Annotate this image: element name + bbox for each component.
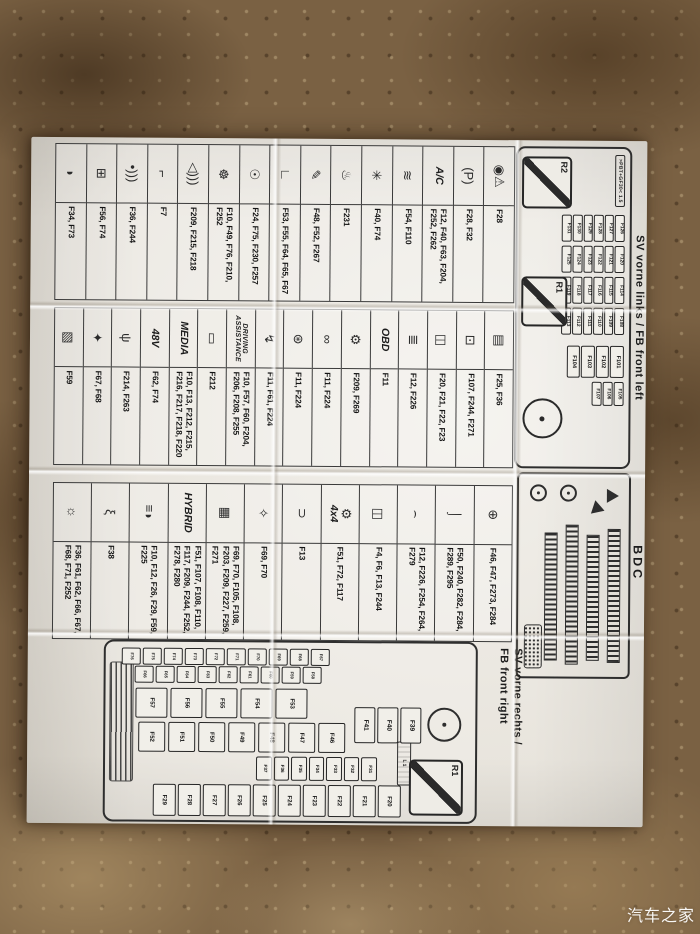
fuse-list: F69, F70, F105, F108, F203, F209, F227, … (206, 543, 244, 640)
fuse-slot: F34 (309, 757, 325, 781)
interior-light-icon-row: ☼F36, F61, F62, F66, F67, F68, F71, F252 (53, 483, 92, 639)
window-lift-icon: ◫ (435, 334, 448, 346)
heated-window-icon: ◫ (360, 485, 398, 544)
fuse-list: F11, F224 (284, 369, 312, 466)
mirror-icon: ▤ (485, 311, 513, 370)
fuse-slot: F41 (354, 707, 375, 743)
fuse-list: F10, F12, F26, F29, F59, F225 (129, 542, 167, 639)
fuse-slot: F61 (240, 666, 259, 683)
parking-brake-icon: (P) (454, 147, 484, 206)
media-label-row: MEDIAF10, F13, F212, F215, F216, F217, F… (169, 309, 199, 465)
fuse-slot: F109 (604, 308, 614, 335)
legend-group-2: ▤F25, F36⊡F107, F244, F271◫F20, F21, F22… (53, 307, 514, 468)
fuse-slot: F65 (156, 666, 175, 683)
fuse-slot: F35 (291, 757, 307, 781)
ac-label: A/C (423, 147, 453, 206)
fuse-slot: F47 (288, 723, 315, 753)
fuse-slot: F36 (274, 757, 290, 781)
fuse-list: F107, F244, F271 (456, 370, 484, 467)
fuse-slot: F21 (353, 785, 376, 817)
ac-label-row: A/CF12, F40, F63, F204, F252, F262 (422, 147, 454, 303)
fuse-slot: F33 (326, 757, 342, 781)
heated-seat-icon-row: ♨F231 (331, 146, 363, 302)
connector-pin-row (565, 525, 579, 665)
fuse-slot: F26 (228, 784, 251, 816)
label-text: MEDIA (178, 321, 189, 355)
front-left-relays: R2R1 (628, 149, 630, 467)
fuse-slot: F105 (614, 382, 624, 406)
engine-pump-icon: ⊛ (292, 334, 305, 345)
fuse-list: F51, F72, F117 (321, 544, 359, 641)
fuse-list: F20, F21, F22, F23 (427, 370, 455, 467)
headlight-icon: ◗ (56, 144, 86, 203)
fuse-legend-table: ◉⚠F28(P)F28, F32A/CF12, F40, F63, F204, … (52, 143, 515, 642)
48v-label: 48V (141, 309, 169, 368)
fan-icon-row: ✳F40, F74 (361, 146, 393, 302)
connector-module-icon-row: ≣F12, F226 (398, 311, 428, 467)
fuse-list: F212 (198, 368, 226, 465)
headlight-beam-icon-row: ≡◗F10, F12, F26, F29, F59, F225 (129, 483, 168, 639)
rear-defrost-icon: ≋ (401, 170, 414, 181)
fuse-slot: F73 (185, 648, 204, 665)
fuse-slot: F48 (258, 722, 285, 752)
fuse-list: F7 (147, 204, 177, 301)
diff-lock-icon-row: ⊕F46, F47, F273, F284 (474, 486, 512, 642)
fuse-slot: F70 (248, 648, 267, 665)
front-right-heading: SV vorne rechts / FB front right (496, 648, 525, 745)
battery-clamp-icon: ⊃ (283, 484, 321, 543)
parking-brake-icon: (P) (462, 167, 475, 184)
fuse-slot: F101 (610, 346, 624, 378)
glow-plug-icon-row: ξF38 (91, 483, 130, 639)
headlight-beam-icon: ≡◗ (142, 505, 155, 521)
steering-wheel-icon: ☸ (217, 168, 230, 180)
fuse-slot: F25 (253, 784, 276, 816)
fuse-column: F20F21F22F23F24F25F26F27F28F29 (153, 784, 401, 818)
screw-point-icon (530, 484, 547, 501)
fuse-list: F28 (484, 206, 514, 303)
key-icon-row: ✦F67, F68 (83, 309, 113, 465)
fuse-list: F34, F73 (55, 203, 85, 300)
fuse-diagram-document: SV vorne links / FB front left BDC >PBT+… (27, 137, 648, 827)
seatbelt-icon: ☉ (248, 169, 261, 181)
fuse-list: F51, F107, F108, F110, F117, F209, F244,… (168, 542, 206, 639)
display-icon-row: ⊡F107, F244, F271 (456, 311, 486, 467)
fuse-column: F46F47F48F49F50F51F52 (138, 722, 345, 753)
relay-r1: R1 (409, 760, 463, 816)
antenna-icon-row: •)))F36, F244 (117, 144, 149, 300)
pillar-icon-row: ⌐F7 (147, 145, 179, 301)
fuse-slot: F111 (583, 308, 593, 335)
convertible-top-icon: ⌢ (398, 485, 436, 544)
fuse-slot: F117 (583, 277, 593, 304)
chain-icon-row: ∞F11, F224 (312, 310, 342, 466)
fuse-list: F12, F226 (398, 370, 426, 467)
fuse-slot: F60 (261, 666, 280, 683)
chain-icon: ∞ (313, 310, 341, 369)
heated-window-icon-row: ◫F4, F6, F13, F244 (359, 485, 398, 641)
interior-light-icon: ☼ (66, 506, 79, 518)
hybrid-label-row: HYBRIDF51, F107, F108, F110, F117, F209,… (168, 483, 207, 639)
fuse-slot: F27 (203, 784, 226, 816)
fuse-slot: F40 (377, 707, 398, 743)
fuse-list: F231 (331, 205, 361, 302)
label-text: OBD (379, 328, 390, 351)
control-module-icon-row: ⊞F56, F74 (86, 144, 118, 300)
fuse-list: F46, F47, F273, F284 (474, 545, 512, 642)
horn-icon: ◁))) (178, 145, 208, 204)
fuse-column: F105F106F107 (592, 382, 624, 406)
steering-wheel-icon-row: ☸F10, F49, F76, F210, F252 (208, 145, 240, 301)
fuse-column: F39F40F41 (354, 707, 421, 743)
usb-icon: ψ (120, 333, 133, 342)
fuse-list: F24, F75, F230, F257 (239, 204, 269, 301)
window-lift-icon-row: ◫F20, F21, F22, F23 (427, 311, 457, 467)
trailer-hitch-icon: ⌡ (448, 510, 461, 518)
mirror-icon: ▤ (493, 334, 506, 346)
fuse-slot: F56 (170, 688, 202, 718)
camera-display-icon: ▭ (198, 309, 226, 368)
horn-icon-row: ◁)))F209, F215, F218 (178, 145, 210, 301)
fuse-list: F40, F74 (361, 205, 391, 302)
connector-pin-row (607, 529, 621, 663)
speaker-grid-drawing (524, 624, 542, 668)
fuse-list: F69, F70 (244, 543, 282, 640)
warning-triangle-icon (607, 489, 619, 503)
key-icon: ✦ (91, 332, 104, 343)
convertible-top-icon-row: ⌢F12, F226, F254, F264, F279 (397, 485, 436, 641)
buzzer-circle-drawing (427, 708, 461, 742)
connector-hatch-area (109, 661, 134, 781)
fuse-column: F114F115F116F117F118F119 (562, 277, 625, 304)
headlight-icon-row: ◗F34, F73 (55, 144, 87, 300)
fan-icon: ✳ (362, 146, 392, 205)
usb-icon-row: ψF214, F263 (111, 309, 141, 465)
fuse-column: F31F32F33F34F35F36F37 (256, 756, 377, 781)
fan-icon: ✳ (370, 170, 383, 181)
rear-defrost-icon-row: ≋F54, F110 (392, 146, 424, 302)
fuse-list: F54, F110 (392, 205, 422, 302)
steering-wheel-icon: ☸ (209, 145, 239, 204)
fuse-slot: F114 (615, 277, 625, 304)
fuse-slot: F110 (593, 308, 603, 335)
fuse-slot: F52 (138, 722, 165, 752)
fuse-list: F10, F13, F212, F215, F216, F217, F218, … (169, 368, 197, 465)
media-label: MEDIA (170, 309, 198, 368)
fuse-slot: F28 (178, 784, 201, 816)
relay-r1: R1 (521, 276, 567, 326)
front-right-heading-line2: FB front right (496, 648, 511, 745)
headlight-beam-icon: ≡◗ (130, 483, 168, 542)
4x4-label-row: ⚙4x4F51, F72, F117 (321, 485, 360, 641)
relay-label: R2 (559, 162, 569, 174)
mirror-icon-row: ▤F25, F36 (484, 311, 513, 467)
glow-plug-icon: ξ (92, 483, 130, 542)
trailer-hitch-icon: ⌡ (436, 485, 474, 544)
fuse-list: F214, F263 (111, 368, 139, 465)
front-right-heading-line1: SV vorne rechts / (510, 648, 525, 745)
fuse-slot: F62 (219, 666, 238, 683)
parking-brake-icon-row: (P)F28, F32 (453, 147, 485, 303)
fuse-slot: F69 (269, 649, 288, 666)
engine-pump-icon: ⊛ (284, 310, 312, 369)
engine-icon: ▦ (207, 484, 245, 543)
fuse-slot: F104 (566, 346, 580, 378)
folding-mirror-icon: ▧ (55, 308, 83, 367)
fuse-list: F11, F224 (312, 369, 340, 466)
fuse-slot: F127 (604, 215, 614, 242)
fuse-slot: F66 (135, 666, 154, 683)
convertible-top-icon: ⌢ (410, 510, 423, 519)
pillar-icon: ⌐ (156, 170, 169, 178)
fuse-slot: F115 (604, 277, 614, 304)
front-left-box-drawing: >PBT+GF30< 1.5 F126F127F128F129F130F131F… (514, 146, 632, 469)
engine-pump-icon-row: ⊛F11, F224 (284, 310, 314, 466)
trailer-hitch-icon-row: ⌡F50, F240, F282, F284, F289, F295 (435, 485, 474, 641)
fuse-list: F62, F74 (140, 368, 168, 465)
injector-icon-row: ↯F11, F61, F224 (255, 310, 285, 466)
fuse-list: F48, F52, F267 (300, 205, 330, 302)
screw-point-icon (560, 485, 577, 502)
fuse-slot: F116 (593, 277, 603, 304)
diff-lock-icon: ⊕ (487, 509, 500, 520)
fuse-slot: F74 (164, 648, 183, 665)
label-text: 4x4 (328, 505, 339, 523)
fuse-slot: F120 (615, 246, 625, 273)
4x4-label: ⚙4x4 (321, 485, 359, 544)
glow-plug-icon: ξ (104, 509, 117, 515)
key-icon: ✦ (83, 309, 111, 368)
heated-seat-icon: ♨ (331, 146, 361, 205)
fuse-list: F13 (282, 543, 320, 640)
chain-icon: ∞ (320, 335, 333, 344)
fuse-list: F12, F40, F63, F204, F252, F262 (422, 206, 452, 303)
abs-warning-icon-row: ◉⚠F28 (484, 147, 515, 303)
fuse-slot: F131 (562, 215, 572, 242)
fuse-slot: F29 (153, 784, 176, 816)
fuse-slot: F122 (594, 246, 604, 273)
fuse-slot: F130 (573, 215, 583, 242)
headlight-icon: ◗ (65, 169, 78, 177)
window-lift-icon: ◫ (428, 311, 456, 370)
legend-group-1: ◉⚠F28(P)F28, F32A/CF12, F40, F63, F204, … (54, 143, 515, 304)
relay-label: R1 (554, 282, 564, 294)
diff-lock-icon: ⊕ (474, 486, 512, 545)
fuse-column: F53F54F55F56F57 (135, 688, 307, 719)
fuse-list: F12, F226, F254, F264, F279 (397, 544, 435, 641)
fuse-list: F25, F36 (484, 370, 512, 467)
abs-warning-icon: ◉⚠ (484, 147, 514, 206)
fuse-slot: F64 (177, 666, 196, 683)
display-icon: ⊡ (464, 335, 477, 346)
key2-icon: ✧ (257, 508, 270, 519)
watermark: 汽车之家 (627, 902, 695, 926)
injector-icon: ↯ (256, 310, 284, 369)
fuse-slot: F59 (282, 667, 301, 684)
fuse-slot: F128 (594, 215, 604, 242)
fuse-slot: F22 (328, 785, 351, 817)
bdc-drawing (516, 472, 631, 679)
plastic-marking-label: >PBT+GF30< 1.5 (615, 155, 625, 207)
door-handle-icon: ∟ (270, 146, 300, 205)
injector-icon: ↯ (263, 333, 276, 344)
key2-icon: ✧ (245, 484, 283, 543)
fuse-slot: F106 (603, 382, 613, 406)
control-module-icon: ⊞ (87, 144, 117, 203)
fuse-slot: F20 (378, 785, 401, 817)
horn-circle-drawing (522, 398, 562, 438)
connector-module-icon: ≣ (407, 334, 420, 345)
fuse-column: F120F121F122F123F124F125 (562, 246, 625, 273)
gear-icon: ⚙ (342, 310, 370, 369)
fuse-column: F67F68F69F70F71F72F73F74F75F76 (122, 648, 330, 666)
wiper-brush-icon-row: ✎F48, F52, F267 (300, 146, 332, 302)
interior-light-icon: ☼ (54, 483, 92, 542)
key2-icon-row: ✧F69, F70 (244, 484, 283, 640)
legend-group-3: ⊕F46, F47, F273, F284⌡F50, F240, F282, F… (52, 482, 513, 643)
connector-pin-row (586, 535, 600, 661)
antenna-icon: •))) (126, 165, 139, 183)
fuse-column: F58F59F60F61F62F63F64F65F66 (135, 666, 322, 684)
fuse-list: F10, F49, F76, F210, F252 (208, 204, 238, 301)
label-text: HYBRID (182, 492, 193, 532)
bdc-heading: BDC (630, 545, 644, 581)
fuse-slot: F102 (596, 346, 610, 378)
fuse-slot: F46 (318, 723, 345, 753)
fuse-diagram-paper: SV vorne links / FB front left BDC >PBT+… (27, 137, 648, 827)
fuse-column: F108F109F110F111F112F113 (561, 308, 624, 335)
fuse-slot: F54 (240, 688, 272, 718)
fuse-slot: F67 (311, 649, 330, 666)
relay-label: R1 (450, 765, 460, 777)
fuse-slot: F63 (198, 666, 217, 683)
fuse-slot: F23 (303, 785, 326, 817)
48v-label-row: 48VF62, F74 (140, 309, 170, 465)
photo-scene: SV vorne links / FB front left BDC >PBT+… (0, 0, 700, 934)
fuse-list: F4, F6, F13, F244 (359, 544, 397, 641)
seatbelt-icon-row: ☉F24, F75, F230, F257 (239, 145, 271, 301)
door-handle-icon-row: ∟F53, F55, F64, F65, F67 (270, 146, 302, 302)
fuse-slot: F31 (361, 757, 377, 781)
engine-icon-row: ▦F69, F70, F105, F108, F203, F209, F227,… (206, 484, 245, 640)
fuse-slot: F103 (581, 346, 595, 378)
fuse-slot: F108 (614, 308, 624, 335)
fuse-slot: F75 (143, 648, 162, 665)
fuse-slot: F124 (572, 246, 582, 273)
front-left-fuse-grid: F126F127F128F129F130F131F120F121F122F123… (561, 215, 625, 406)
fuse-slot: F112 (572, 308, 582, 335)
front-right-box-drawing: L1 F20F21F22F23F24F25F26F27F28F29F31F32F… (103, 639, 478, 824)
folding-mirror-icon-row: ▧F59 (54, 308, 84, 464)
fuse-column: F101F102F103F104 (566, 346, 624, 378)
fuse-slot: F58 (303, 667, 322, 684)
fuse-slot: F72 (206, 648, 225, 665)
fuse-column: F126F127F128F129F130F131 (562, 215, 625, 242)
fuse-list: F67, F68 (83, 368, 111, 465)
driving-assistance-label: DRIVING ASSISTANCE (227, 310, 255, 369)
wiper-brush-icon: ✎ (301, 146, 331, 205)
label-text: 48V (149, 329, 160, 348)
fuse-list: F209, F269 (341, 369, 369, 466)
gear-icon-row: ⚙F209, F269 (341, 310, 371, 466)
fuse-slot: F37 (256, 756, 272, 780)
fuse-slot: F125 (562, 246, 572, 273)
fuse-list: F38 (91, 542, 129, 639)
fuse-slot: F123 (583, 246, 593, 273)
heated-seat-icon: ♨ (340, 169, 353, 181)
usb-icon: ψ (112, 309, 140, 368)
label-text: DRIVING ASSISTANCE (233, 315, 248, 362)
heated-window-icon: ◫ (372, 508, 385, 520)
fuse-list: F36, F244 (117, 203, 147, 300)
fuse-slot: F39 (400, 707, 421, 743)
fuse-slot: F55 (205, 688, 237, 718)
antenna-icon: •))) (117, 144, 147, 203)
fuse-slot: F129 (583, 215, 593, 242)
fuse-slot: F68 (290, 649, 309, 666)
connector-module-icon: ≣ (399, 311, 427, 370)
hybrid-label: HYBRID (168, 483, 206, 542)
warning-triangle-icon (591, 500, 607, 517)
fuse-list: F209, F215, F218 (178, 204, 208, 301)
fuse-list: F59 (54, 367, 82, 464)
engine-icon: ▦ (219, 507, 232, 519)
horn-icon: ◁))) (187, 162, 200, 185)
fuse-slot: F118 (572, 277, 582, 304)
fuse-slot: F121 (604, 246, 614, 273)
abs-warning-icon: ◉⚠ (493, 165, 506, 188)
door-handle-icon: ∟ (279, 168, 292, 181)
rear-defrost-icon: ≋ (393, 146, 423, 205)
connector-pin-row (544, 532, 558, 660)
obd-label-row: OBDF11 (370, 311, 400, 467)
fuse-slot: F51 (168, 722, 195, 752)
fuse-slot: F53 (275, 689, 307, 719)
display-icon: ⊡ (456, 311, 484, 370)
fuse-slot: F126 (615, 215, 625, 242)
pillar-icon: ⌐ (148, 145, 178, 204)
battery-clamp-icon-row: ⊃F13 (282, 484, 321, 640)
4x4-label: ⚙ (340, 508, 353, 520)
fuse-list: F50, F240, F282, F284, F289, F295 (435, 544, 473, 641)
fuse-list: F36, F61, F62, F66, F67, F68, F71, F252 (53, 542, 91, 639)
fuse-slot: F71 (227, 648, 246, 665)
camera-display-icon: ▭ (206, 332, 219, 344)
fuse-list: F11 (370, 370, 398, 467)
gear-icon: ⚙ (349, 334, 362, 346)
fuse-slot: F32 (344, 757, 360, 781)
fuse-list: F53, F55, F64, F65, F67 (270, 205, 300, 302)
fuse-list: F56, F74 (86, 203, 116, 300)
fuse-slot: F107 (592, 382, 602, 406)
fuse-slot: F49 (228, 722, 255, 752)
fuse-list: F11, F61, F224 (255, 369, 283, 466)
obd-label: OBD (370, 311, 398, 370)
battery-clamp-icon: ⊃ (295, 508, 308, 519)
driving-assistance-label-row: DRIVING ASSISTANCEF10, F57, F60, F204, F… (226, 310, 256, 466)
control-module-icon: ⊞ (95, 168, 108, 179)
fuse-slot: F57 (135, 688, 167, 718)
relay-r2: R2 (522, 156, 572, 208)
fuse-slot: F24 (278, 785, 301, 817)
folding-mirror-icon: ▧ (62, 331, 75, 343)
fuse-slot: F76 (122, 648, 141, 665)
seatbelt-icon: ☉ (240, 145, 270, 204)
front-left-heading: SV vorne links / FB front left (633, 235, 646, 400)
fuse-list: F10, F57, F60, F204, F206, F208, F255 (226, 369, 254, 466)
wiper-brush-icon: ✎ (309, 169, 322, 180)
label-text: A/C (433, 167, 444, 185)
